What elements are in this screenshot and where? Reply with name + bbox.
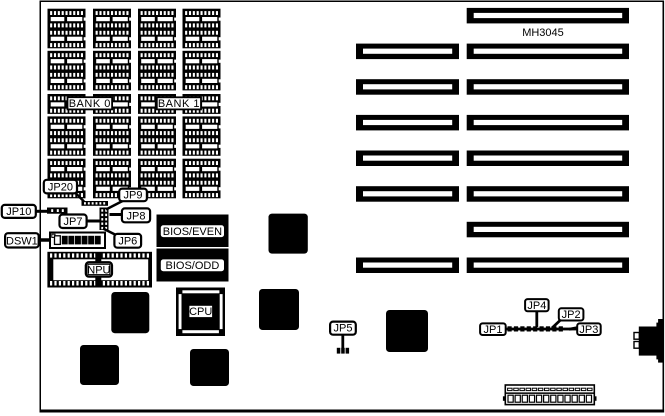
- svg-text:BANK 0: BANK 0: [69, 98, 111, 110]
- svg-text:CPU: CPU: [189, 306, 212, 318]
- svg-text:NPU: NPU: [87, 264, 110, 276]
- svg-text:JP8: JP8: [127, 210, 146, 222]
- svg-text:BIOS/ODD: BIOS/ODD: [166, 260, 220, 272]
- svg-text:MH3045: MH3045: [522, 27, 564, 39]
- svg-text:DSW1: DSW1: [6, 235, 38, 247]
- svg-text:JP10: JP10: [6, 206, 31, 218]
- svg-text:JP2: JP2: [562, 309, 581, 321]
- svg-text:JP20: JP20: [48, 182, 73, 194]
- svg-text:JP7: JP7: [64, 216, 83, 228]
- svg-text:JP5: JP5: [334, 323, 353, 335]
- svg-text:JP9: JP9: [124, 190, 143, 202]
- svg-text:BIOS/EVEN: BIOS/EVEN: [163, 226, 222, 238]
- svg-text:JP1: JP1: [484, 324, 503, 336]
- svg-text:BANK 1: BANK 1: [158, 98, 200, 110]
- svg-text:JP4: JP4: [527, 300, 546, 312]
- svg-text:JP6: JP6: [118, 236, 137, 248]
- svg-text:JP3: JP3: [579, 324, 598, 336]
